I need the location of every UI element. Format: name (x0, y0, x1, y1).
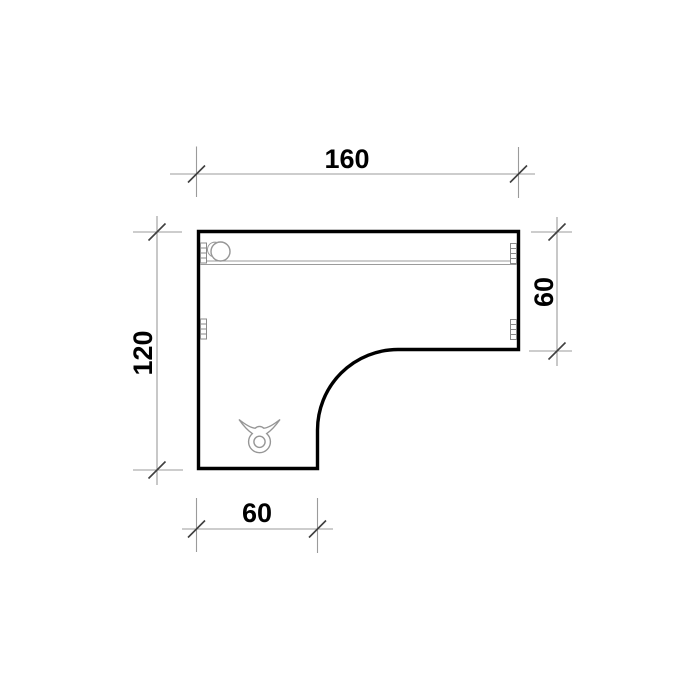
dimension-bottom: 60 (182, 498, 333, 553)
dimension-left: 120 (128, 216, 183, 485)
mounting-bracket-icon (201, 319, 207, 339)
dimension-label-top: 160 (324, 144, 369, 174)
dimension-label-right: 60 (529, 277, 559, 307)
dimension-label-left: 120 (128, 330, 158, 375)
mounting-bracket-icon (511, 244, 517, 264)
dimension-label-bottom: 60 (242, 498, 272, 528)
mounting-bracket-icon (511, 320, 517, 340)
dimension-top: 160 (170, 144, 535, 198)
dimension-right: 60 (529, 217, 572, 366)
technical-drawing-canvas: 160 60 120 60 (0, 0, 700, 700)
desk-plan-drawing: 160 60 120 60 (0, 0, 700, 700)
desk-outline (199, 232, 519, 469)
mounting-bracket-icon (201, 243, 207, 263)
